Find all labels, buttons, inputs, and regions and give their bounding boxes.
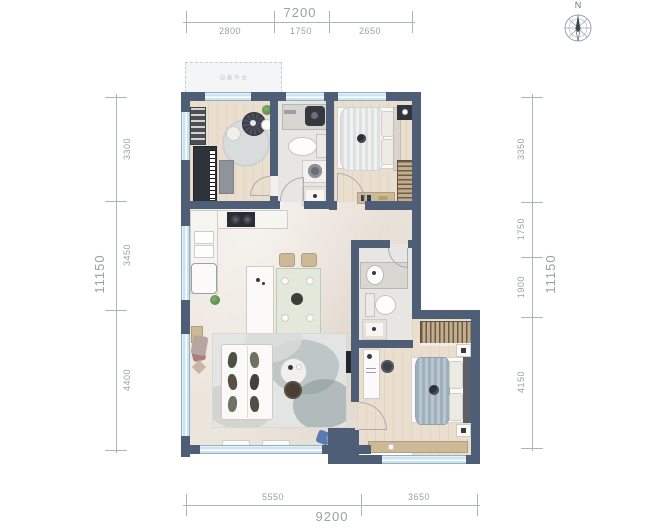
dim-left-seg-2: 3450 [122,235,132,275]
equipment-platform: 设备平台 [185,62,282,93]
dim-left-seg-1: 3300 [122,129,132,169]
sink-drain-icon [372,271,376,275]
dresser-decor [378,196,388,200]
wall-bath2-left [351,240,359,340]
dim-tick [186,494,187,516]
dim-right-seg-1: 3350 [516,129,526,169]
equipment-platform-label: 设备平台 [219,74,248,82]
dining-chair [279,253,295,267]
plate-icon [306,314,314,322]
dim-bottom-line [183,505,480,506]
armchair-cushion [250,120,256,126]
desk-chair [381,360,394,373]
piano-keys [210,150,215,200]
wall-master-top [412,310,480,319]
dim-bottom-total: 9200 [302,510,362,524]
dim-right-line [532,94,533,451]
blanket-knot [429,385,439,395]
dim-top-seg-2: 1750 [281,26,321,36]
burner-icon [231,215,240,224]
window-top-bath [286,92,324,101]
sofa-seam [247,346,248,418]
piano-bench [219,160,234,194]
dim-right-seg-3: 1900 [516,267,526,307]
lamp-icon [461,428,466,433]
dim-tick [186,11,187,33]
dim-top-line [183,22,415,23]
wall-bath2-top-b [408,240,413,248]
lamp-icon [461,348,466,353]
shower-drain-icon [372,327,376,331]
window-left-living [181,334,190,436]
pillow [449,393,463,421]
plate-icon [306,277,314,285]
refrigerator [191,263,217,294]
compass-icon [562,11,594,45]
wall-living-master-b [351,430,359,455]
dim-tick [412,11,413,33]
toilet-2 [375,295,396,315]
kitchen-sink-upper [194,231,214,244]
wall-right-mid [412,201,421,318]
plate-icon [281,314,289,322]
kitchen-sink-lower [194,245,214,258]
dim-top-seg-3: 2650 [350,26,390,36]
window-bottom-living [200,445,322,454]
coffee-table-dark [284,381,302,399]
dim-tick [521,97,543,98]
reading-chair [226,126,241,141]
wall-right-upper [412,92,421,210]
wall-right-lower [471,310,480,464]
island-decor [262,282,265,285]
faucet-icon [284,110,296,114]
burner-icon [243,215,252,224]
dim-tick [477,494,478,516]
window-top-bedroom2 [338,92,386,101]
wall-bath1-bottom-b [304,201,329,209]
bed-bench [368,441,468,453]
dim-bottom-seg-1: 5550 [253,492,293,502]
dim-top-seg-1: 2800 [210,26,250,36]
dim-bottom-seg-2: 3650 [399,492,439,502]
wall-living-master-a [351,348,359,402]
window-left-kitchen [181,226,190,300]
desk-lamp-icon [367,354,372,359]
compass-north-label: N [558,0,598,10]
window-top-piano [205,92,251,101]
dim-tick [521,448,543,449]
floor-plan-canvas: 7200 2800 1750 2650 5550 3650 9200 3300 … [0,0,660,530]
dim-left-line [116,94,117,453]
island-decor [256,278,260,282]
headboard-master [463,357,471,423]
dim-tick [105,97,127,98]
wall-bath2-bottom [351,340,413,348]
window-left-piano [181,112,190,160]
slippers-icon [388,444,394,450]
table-decor [296,364,302,370]
dim-left-total: 11150 [93,244,107,304]
dim-tick [105,201,127,202]
pillow [449,361,463,389]
washer-drum-icon [308,164,322,178]
toilet [288,137,317,156]
centerpiece [291,293,303,305]
dim-tick [521,202,543,203]
desk-item [366,372,376,373]
wall-step-band [328,455,385,464]
dim-tick [329,11,330,33]
table-decor [288,365,293,370]
sink-drain-icon [311,112,318,119]
dim-tick [105,450,127,451]
desk-item [366,368,376,369]
vanity-sink-2 [366,265,384,285]
plate-icon [281,277,289,285]
lamp-icon [402,109,408,115]
blanket-knot [357,134,366,143]
dim-tick [274,11,275,33]
shower-drain-icon [313,194,317,198]
dim-tick [105,310,127,311]
wardrobe-master [420,321,473,344]
dim-right-seg-2: 1750 [516,209,526,249]
dim-tick [521,317,543,318]
window-bottom-master [382,455,466,464]
wall-piano-right [270,92,278,176]
dim-right-total: 11150 [544,244,558,304]
wall-bath1-right [326,92,334,209]
dim-right-seg-4: 4150 [516,362,526,402]
toilet-tank-2 [365,293,375,317]
dim-top-total: 7200 [270,6,330,20]
dim-tick [521,257,543,258]
dim-left-seg-3: 4400 [122,360,132,400]
plant-icon [210,295,220,305]
wall-bath1-bottom-a [270,201,280,209]
wall-piano-bottom [181,201,270,209]
dining-chair [301,253,317,267]
bookshelf [190,107,206,145]
kitchen-island [246,266,274,334]
